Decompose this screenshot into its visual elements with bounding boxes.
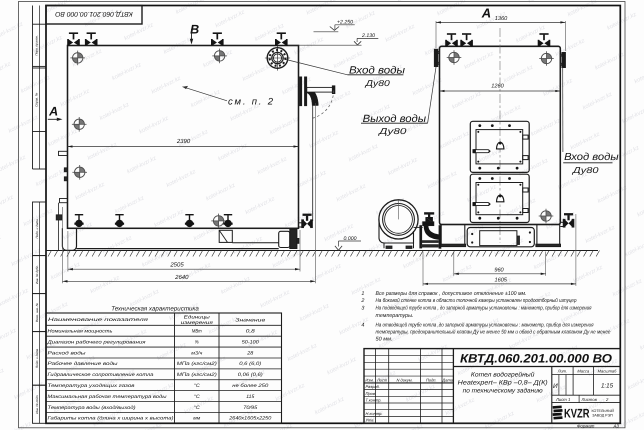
svg-text:Т.контр.: Т.контр. — [366, 398, 382, 403]
svg-text:Взам. инв. №: Взам. инв. № — [35, 302, 39, 322]
svg-text:KVZR: KVZR — [564, 407, 590, 421]
svg-text:КОТЕЛЬНЫЙ: КОТЕЛЬНЫЙ — [592, 408, 615, 413]
svg-text:Значение: Значение — [235, 318, 265, 324]
svg-text:Расход воды: Расход воды — [48, 350, 87, 356]
svg-text:МВт: МВт — [192, 329, 202, 335]
svg-text:Рабочее давление воды: Рабочее давление воды — [48, 361, 119, 367]
svg-text:Heatexpert– КВр –0,8– Д(К): Heatexpert– КВр –0,8– Д(К) — [458, 380, 548, 387]
svg-text:Диапазон рабочего регулировани: Диапазон рабочего регулирования — [46, 339, 146, 345]
svg-text:°С: °С — [194, 405, 201, 411]
svg-text:ЗАВОД РЭП: ЗАВОД РЭП — [592, 413, 613, 417]
svg-text:Подп. и дата: Подп. и дата — [35, 348, 39, 368]
svg-text:Ду80: Ду80 — [378, 126, 407, 136]
svg-text:Масштаб: Масштаб — [598, 369, 617, 374]
svg-text:Ду80: Ду80 — [364, 78, 390, 88]
svg-text:0.000: 0.000 — [344, 236, 357, 242]
svg-text:Пров.: Пров. — [366, 391, 377, 396]
svg-text:Температура уходящих газов: Температура уходящих газов — [48, 383, 136, 389]
svg-text:Утв.: Утв. — [366, 418, 375, 423]
svg-text:температуры, предохранительный: температуры, предохранительный клапан Ду… — [376, 329, 611, 335]
svg-text:Дата: Дата — [441, 377, 453, 382]
svg-text:измерения: измерения — [181, 321, 214, 326]
svg-text:N докум.: N докум. — [397, 377, 413, 382]
svg-text:Инв. № дубл.: Инв. № дубл. — [35, 265, 39, 284]
svg-text:Н.контр.: Н.контр. — [366, 411, 383, 416]
svg-text:2: 2 — [360, 298, 364, 304]
svg-text:50-100: 50-100 — [242, 339, 259, 345]
svg-text:°С: °С — [194, 394, 201, 400]
svg-text:Формат: Формат — [577, 423, 595, 428]
svg-text:50 мм.: 50 мм. — [376, 337, 393, 343]
svg-text:2.130: 2.130 — [361, 33, 375, 39]
svg-text:Масса: Масса — [577, 369, 590, 374]
svg-text:1: 1 — [568, 397, 570, 402]
svg-text:115: 115 — [246, 394, 254, 400]
svg-text:не более 250: не более 250 — [232, 383, 268, 389]
svg-text:И: И — [553, 383, 558, 390]
svg-text:Перв. примен.: Перв. примен. — [35, 35, 39, 56]
svg-text:Лит.: Лит. — [557, 369, 567, 374]
svg-text:КВТД.060.201.00.000 ВО: КВТД.060.201.00.000 ВО — [55, 10, 133, 17]
svg-text:На подводящей трубе котла ,: На подводящей трубе котла , до запорной … — [376, 306, 592, 312]
svg-text:Температура воды (вход/выход): Температура воды (вход/выход) — [48, 405, 136, 411]
svg-text:Лист: Лист — [555, 397, 567, 402]
svg-text:960: 960 — [494, 267, 504, 273]
svg-text:%: % — [195, 339, 200, 345]
svg-text:Листов: Листов — [581, 397, 598, 402]
svg-text:Ду80: Ду80 — [572, 165, 599, 175]
svg-text:Подп. и дата: Подп. и дата — [35, 219, 39, 239]
svg-text:м3/ч: м3/ч — [191, 350, 203, 356]
svg-text:мм: мм — [193, 417, 201, 422]
svg-text:0,6 (6,0): 0,6 (6,0) — [239, 361, 261, 367]
svg-text:МПа (кгс/см2): МПа (кгс/см2) — [177, 361, 217, 367]
svg-text:0,06 (0,6): 0,06 (0,6) — [238, 372, 263, 378]
svg-text:1:15: 1:15 — [601, 383, 614, 390]
svg-text:Максимальная рабочая температу: Максимальная рабочая температура воды — [48, 394, 168, 400]
svg-text:КВТД.060.201.00.000 ВО: КВТД.060.201.00.000 ВО — [460, 351, 613, 365]
svg-text:1360: 1360 — [495, 16, 508, 22]
svg-text:0,8: 0,8 — [246, 329, 255, 335]
svg-text:2640: 2640 — [174, 274, 189, 281]
svg-text:Инв. № подл.: Инв. № подл. — [35, 395, 39, 414]
svg-text:Котел водогрейный: Котел водогрейный — [471, 372, 535, 379]
svg-text:Разраб.: Разраб. — [366, 384, 380, 389]
svg-text:см. п. 2: см. п. 2 — [228, 96, 274, 107]
svg-text:Номинальная мощность: Номинальная мощность — [48, 329, 114, 335]
svg-text:На боковой стенке котла в обла: На боковой стенке котла в области топочн… — [376, 298, 577, 304]
svg-text:А: А — [48, 105, 58, 119]
svg-text:4: 4 — [361, 323, 364, 329]
svg-text:28: 28 — [246, 350, 253, 356]
svg-text:Справ. №: Справ. № — [35, 92, 39, 107]
svg-text:Вход воды: Вход воды — [564, 152, 619, 163]
svg-text:МПа (кгс/см2): МПа (кгс/см2) — [177, 372, 217, 378]
svg-text:Все размеры для справок , допу: Все размеры для справок , допустимое отк… — [376, 291, 527, 297]
svg-text:°С: °С — [194, 383, 201, 389]
svg-text:На отводящей трубе котла ,до з: На отводящей трубе котла ,до запорной ар… — [376, 323, 594, 329]
svg-text:Изм.: Изм. — [365, 377, 374, 382]
svg-text:2640х1605х2250: 2640х1605х2250 — [228, 416, 271, 422]
svg-text:1605: 1605 — [494, 277, 507, 283]
svg-text:по техническому заданию: по техническому заданию — [463, 388, 543, 395]
svg-text:Единицы: Единицы — [184, 315, 211, 321]
svg-text:Гидравлическое сопротивление к: Гидравлическое сопротивление котла — [48, 372, 154, 378]
svg-text:70/95: 70/95 — [243, 405, 257, 411]
svg-text:А3: А3 — [613, 423, 620, 428]
svg-text:А: А — [481, 6, 491, 21]
svg-text:2390: 2390 — [176, 138, 191, 145]
svg-text:Наименование показателя: Наименование показателя — [48, 317, 149, 323]
svg-text:температуры.: температуры. — [376, 313, 414, 319]
svg-text:Лист: Лист — [376, 377, 388, 382]
svg-text:Техническая характеристика: Техническая характеристика — [111, 306, 199, 313]
svg-text:3: 3 — [361, 306, 364, 312]
svg-text:Габариты котла (длина х ширина: Габариты котла (длина х ширина х высота) — [48, 416, 174, 422]
svg-text:1260: 1260 — [491, 84, 504, 90]
svg-text:+2.250: +2.250 — [337, 20, 353, 26]
svg-text:1: 1 — [361, 291, 364, 297]
svg-text:2505: 2505 — [169, 262, 184, 269]
svg-text:Подп.: Подп. — [426, 377, 437, 382]
